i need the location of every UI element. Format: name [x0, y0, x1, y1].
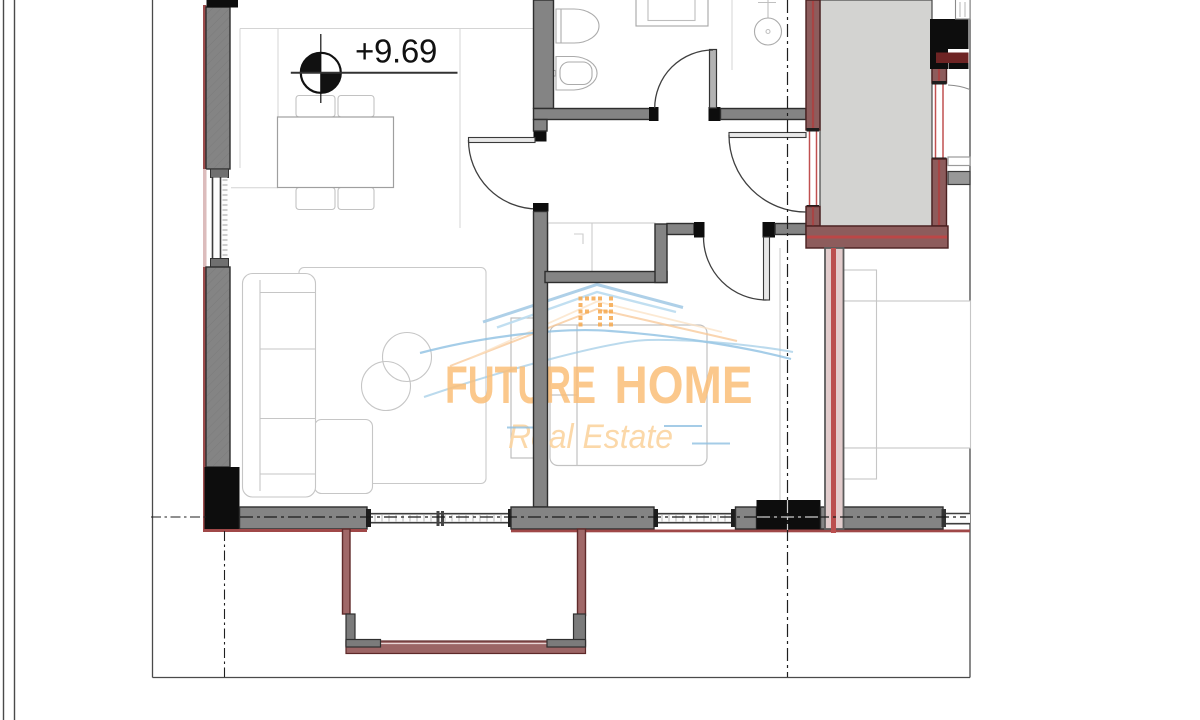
svg-text:HOME: HOME — [615, 356, 753, 415]
svg-text:+9.69: +9.69 — [355, 33, 437, 70]
svg-text:FUTURE: FUTURE — [445, 356, 596, 415]
svg-text:Real Estate: Real Estate — [508, 418, 673, 456]
